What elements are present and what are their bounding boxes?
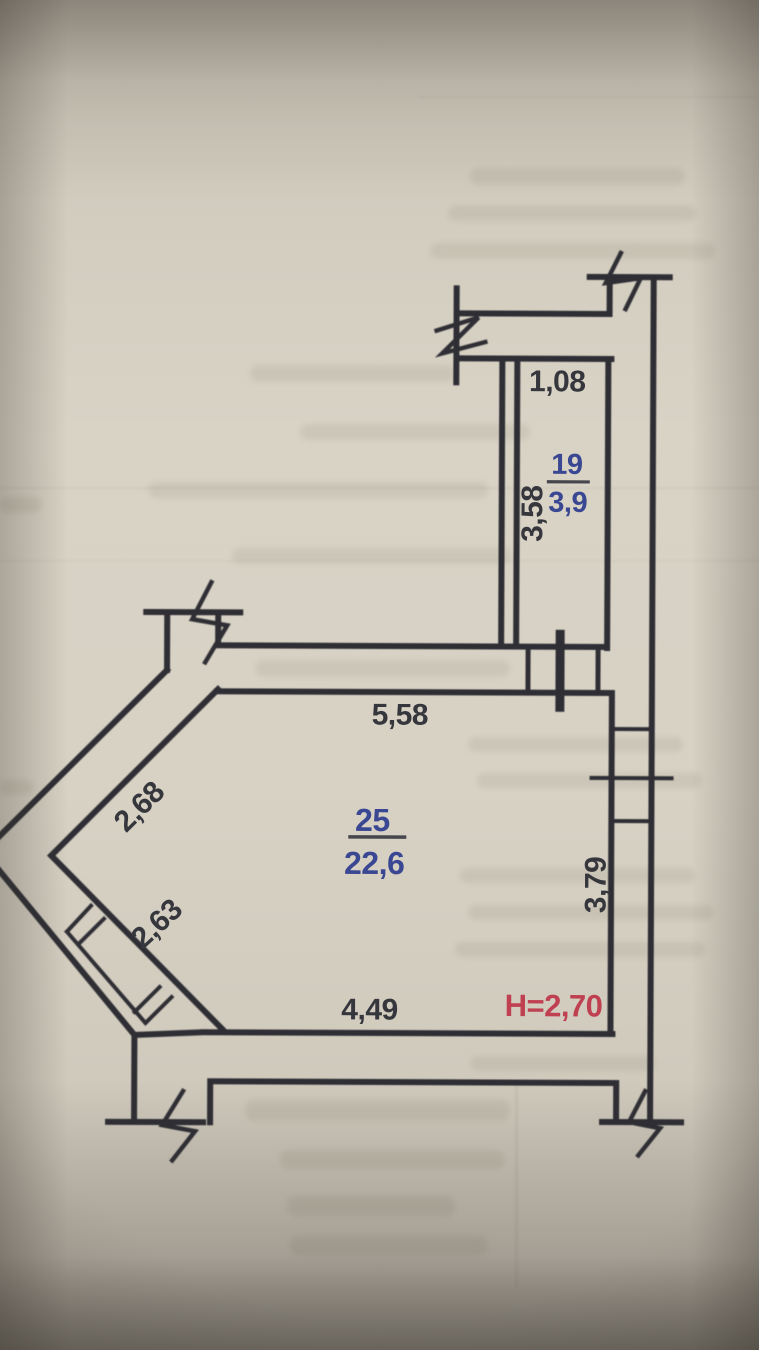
dim-room25-diagonal-lower: 2,63	[125, 893, 189, 956]
room19-number: 19	[551, 449, 583, 481]
floor-plan-drawing: 1,08 3,58 5,58 2,68 2,63 4,49 3,79 19 3,…	[0, 0, 759, 1350]
dim-room25-bottom: 4,49	[341, 993, 398, 1026]
floor-plan-photo: 1,08 3,58 5,58 2,68 2,63 4,49 3,79 19 3,…	[0, 0, 759, 1350]
dim-room19-depth: 3,58	[516, 485, 549, 542]
room25-number: 25	[355, 802, 390, 838]
room25-area: 22,6	[344, 845, 404, 881]
dim-room25-diagonal-upper: 2,68	[108, 775, 171, 838]
ceiling-height-note: H=2,70	[505, 988, 603, 1023]
dim-room25-right: 3,79	[579, 857, 612, 914]
room19-area: 3,9	[548, 487, 587, 519]
dim-room19-width: 1,08	[529, 365, 586, 398]
dim-room25-top: 5,58	[372, 698, 429, 731]
